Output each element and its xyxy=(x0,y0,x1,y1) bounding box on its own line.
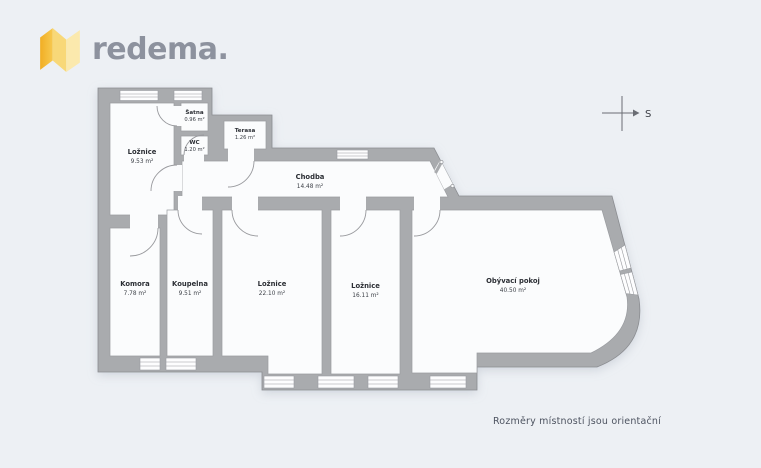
window xyxy=(430,376,466,388)
window xyxy=(140,358,160,370)
compass-north-label: S xyxy=(645,109,651,120)
room-label-area: 7.78 m² xyxy=(124,290,147,297)
room-label-area: 9.53 m² xyxy=(131,158,154,165)
door-opening xyxy=(340,196,366,211)
compass-arrow-icon xyxy=(633,110,640,117)
room-label-name: Komora xyxy=(120,280,150,288)
room-label-name: Ložnice xyxy=(128,148,157,156)
room-label-name: Obývací pokoj xyxy=(486,276,540,285)
door-opening xyxy=(173,106,182,126)
door-opening xyxy=(173,165,182,191)
footer-note: Rozměry místností jsou orientační xyxy=(493,416,661,427)
door-opening xyxy=(232,196,258,211)
door-opening xyxy=(178,196,202,211)
window xyxy=(318,376,354,388)
room-label-name: Chodba xyxy=(296,173,325,181)
room-label-name: Terasa xyxy=(235,128,256,134)
door-opening xyxy=(184,154,204,162)
compass xyxy=(602,96,640,131)
window xyxy=(166,358,196,370)
room-label-area: 0.96 m² xyxy=(184,117,204,123)
room-label-area: 16.11 m² xyxy=(352,292,378,299)
door-opening xyxy=(414,195,440,211)
room-label-name: WC xyxy=(189,140,199,146)
room-label-name: Koupelna xyxy=(172,280,208,288)
room-label-name: Ložnice xyxy=(351,282,380,290)
room-label-name: Šatna xyxy=(185,109,203,116)
floor-plan: Ložnice 9.53 m² Šatna 0.96 m² WC 1.20 m²… xyxy=(0,0,761,468)
window xyxy=(174,91,202,101)
door-opening xyxy=(228,147,254,162)
window xyxy=(337,150,368,159)
room-label-area: 1.26 m² xyxy=(235,135,255,141)
room-label-area: 40.50 m² xyxy=(500,287,526,294)
window xyxy=(120,91,158,101)
room-label-name: Ložnice xyxy=(258,280,287,288)
window xyxy=(264,376,294,388)
room-loznice-16 xyxy=(331,210,400,374)
room-label-area: 22.10 m² xyxy=(259,290,285,297)
door-opening xyxy=(130,214,158,229)
room-label-area: 14.48 m² xyxy=(297,183,323,190)
room-label-area: 1.20 m² xyxy=(184,147,204,153)
room-label-area: 9.51 m² xyxy=(179,290,202,297)
window xyxy=(368,376,398,388)
